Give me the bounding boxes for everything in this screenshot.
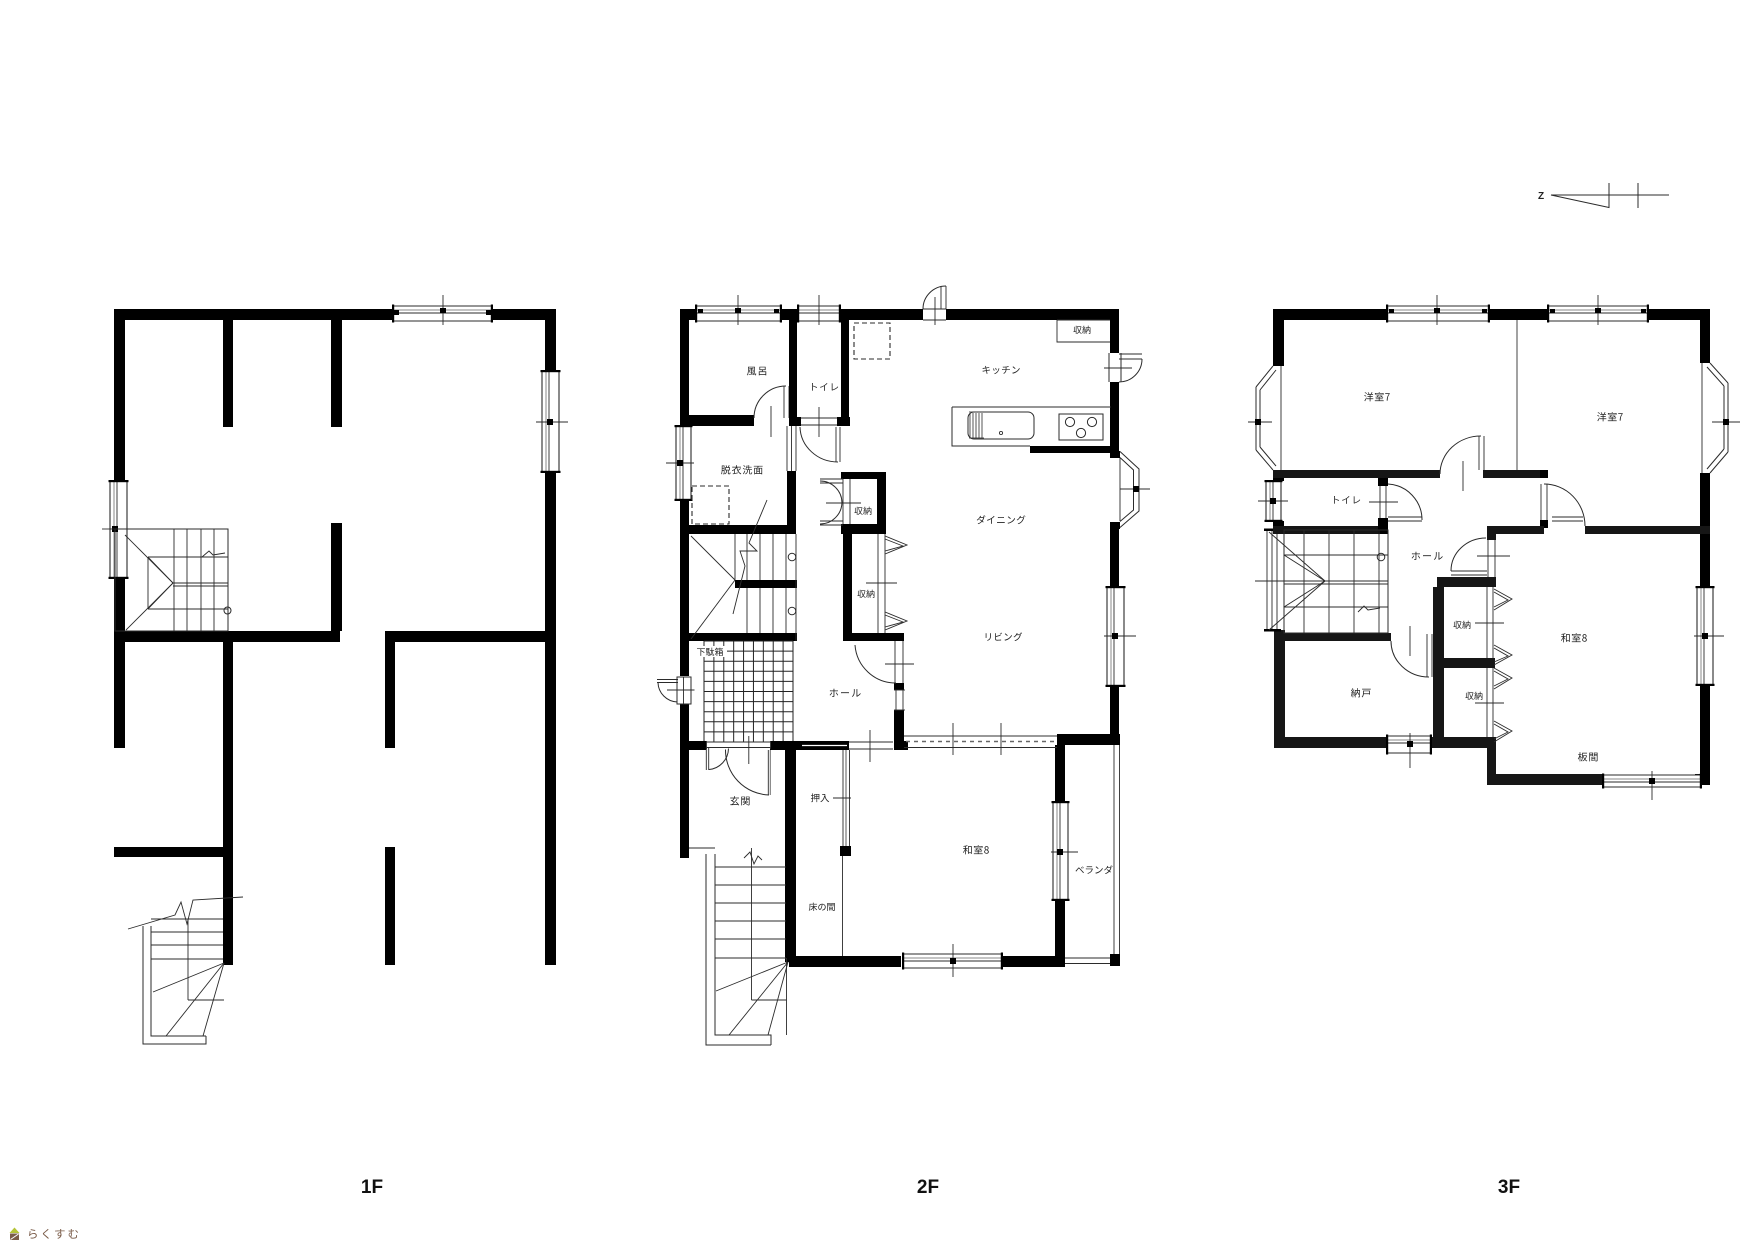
svg-text:Z: Z <box>1538 191 1544 202</box>
svg-text:1F: 1F <box>361 1177 383 1198</box>
svg-text:2F: 2F <box>917 1177 939 1198</box>
svg-text:3F: 3F <box>1498 1177 1520 1198</box>
